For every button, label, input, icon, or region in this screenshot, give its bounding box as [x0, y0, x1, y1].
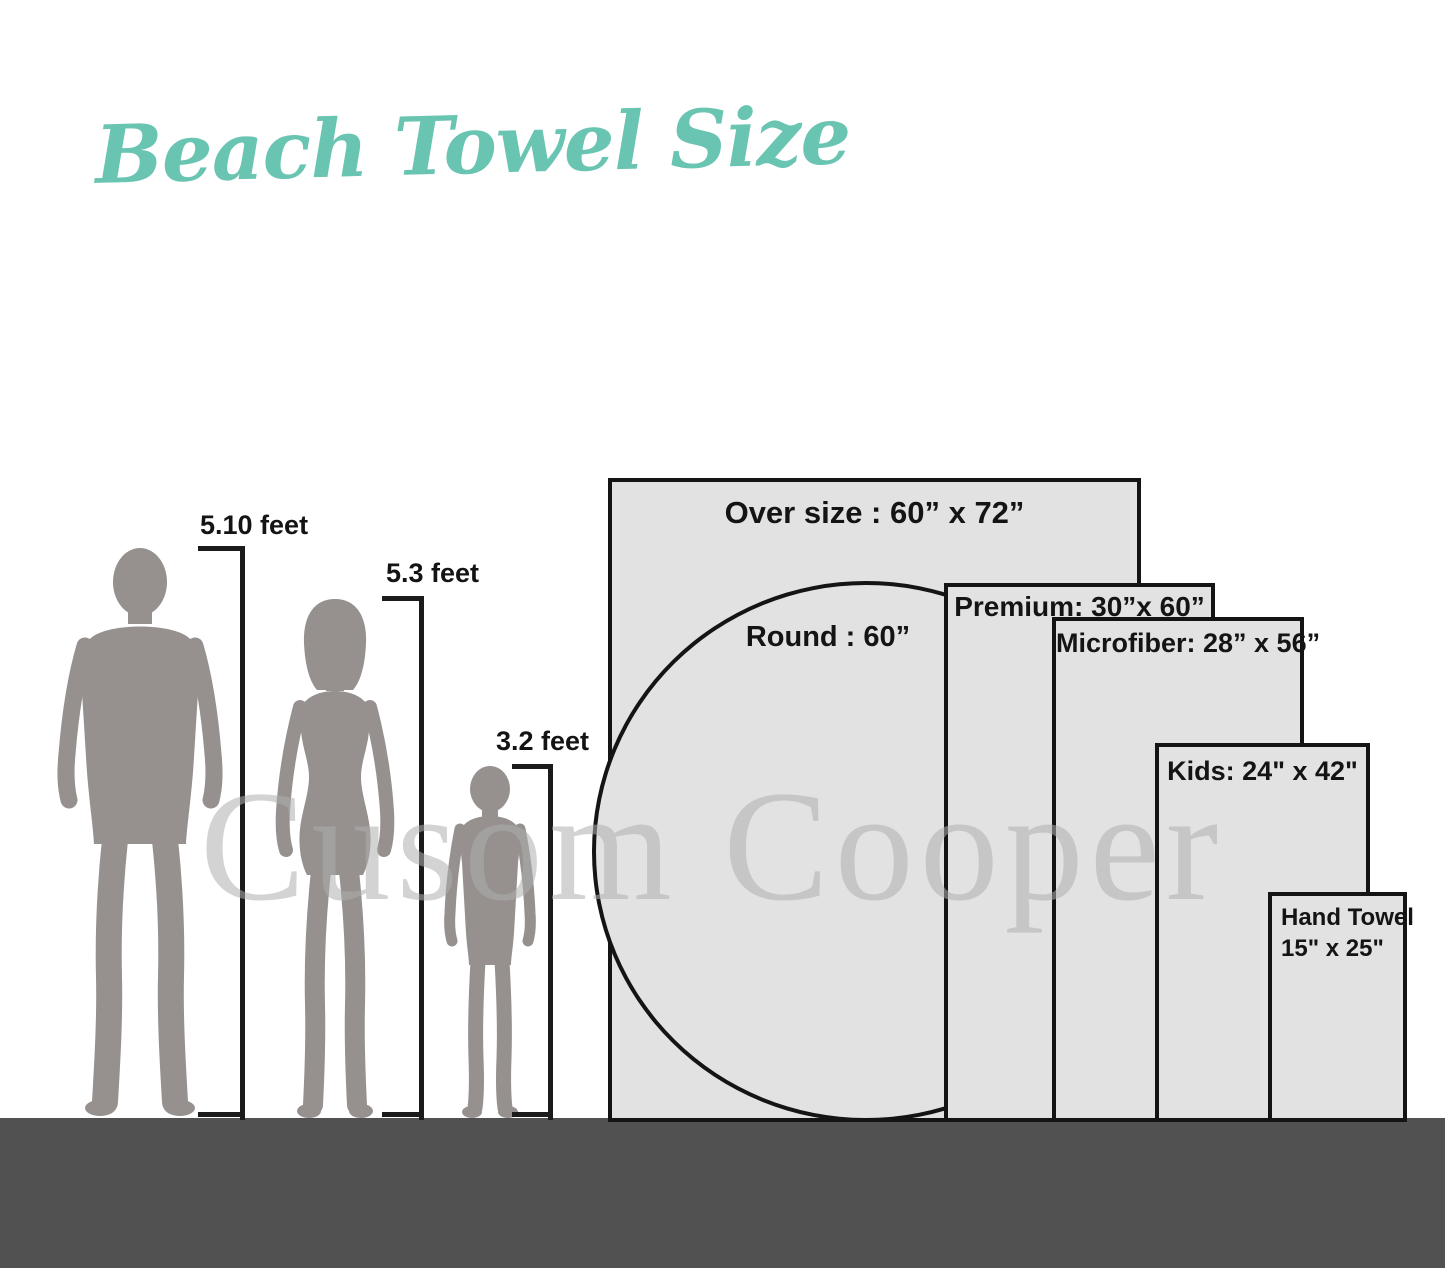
towel-hand: Hand Towel 15" x 25" — [1268, 892, 1407, 1122]
man-height-bracket-line — [240, 546, 245, 1120]
woman-height-bracket-top — [382, 596, 424, 601]
towel-oversize-label: Over size : 60” x 72” — [612, 482, 1137, 531]
woman-height-label: 5.3 feet — [386, 558, 479, 589]
child-height-bracket-top — [512, 764, 553, 769]
child-height-label: 3.2 feet — [496, 726, 589, 757]
man-height-bracket-top — [198, 546, 245, 551]
child-height-bracket-tick — [512, 1112, 553, 1117]
woman-height-bracket-line — [419, 596, 424, 1120]
page-title: Beach Towel Size — [94, 88, 851, 202]
woman-height-bracket-tick — [382, 1112, 424, 1117]
child-height-bracket-line — [548, 764, 553, 1120]
towel-hand-size-label: 15" x 25" — [1281, 933, 1403, 964]
towel-hand-label: Hand Towel — [1281, 902, 1403, 933]
man-height-label: 5.10 feet — [200, 510, 308, 541]
ground-bar — [0, 1118, 1445, 1268]
towel-kids-label: Kids: 24" x 42" — [1159, 747, 1366, 787]
beach-towel-size-infographic: Beach Towel Size — [0, 0, 1445, 1268]
child-silhouette — [430, 761, 550, 1120]
towel-microfiber-label: Microfiber: 28” x 56” — [1056, 621, 1300, 659]
man-height-bracket-tick — [198, 1112, 245, 1117]
woman-silhouette — [258, 593, 413, 1120]
man-silhouette — [45, 542, 230, 1120]
